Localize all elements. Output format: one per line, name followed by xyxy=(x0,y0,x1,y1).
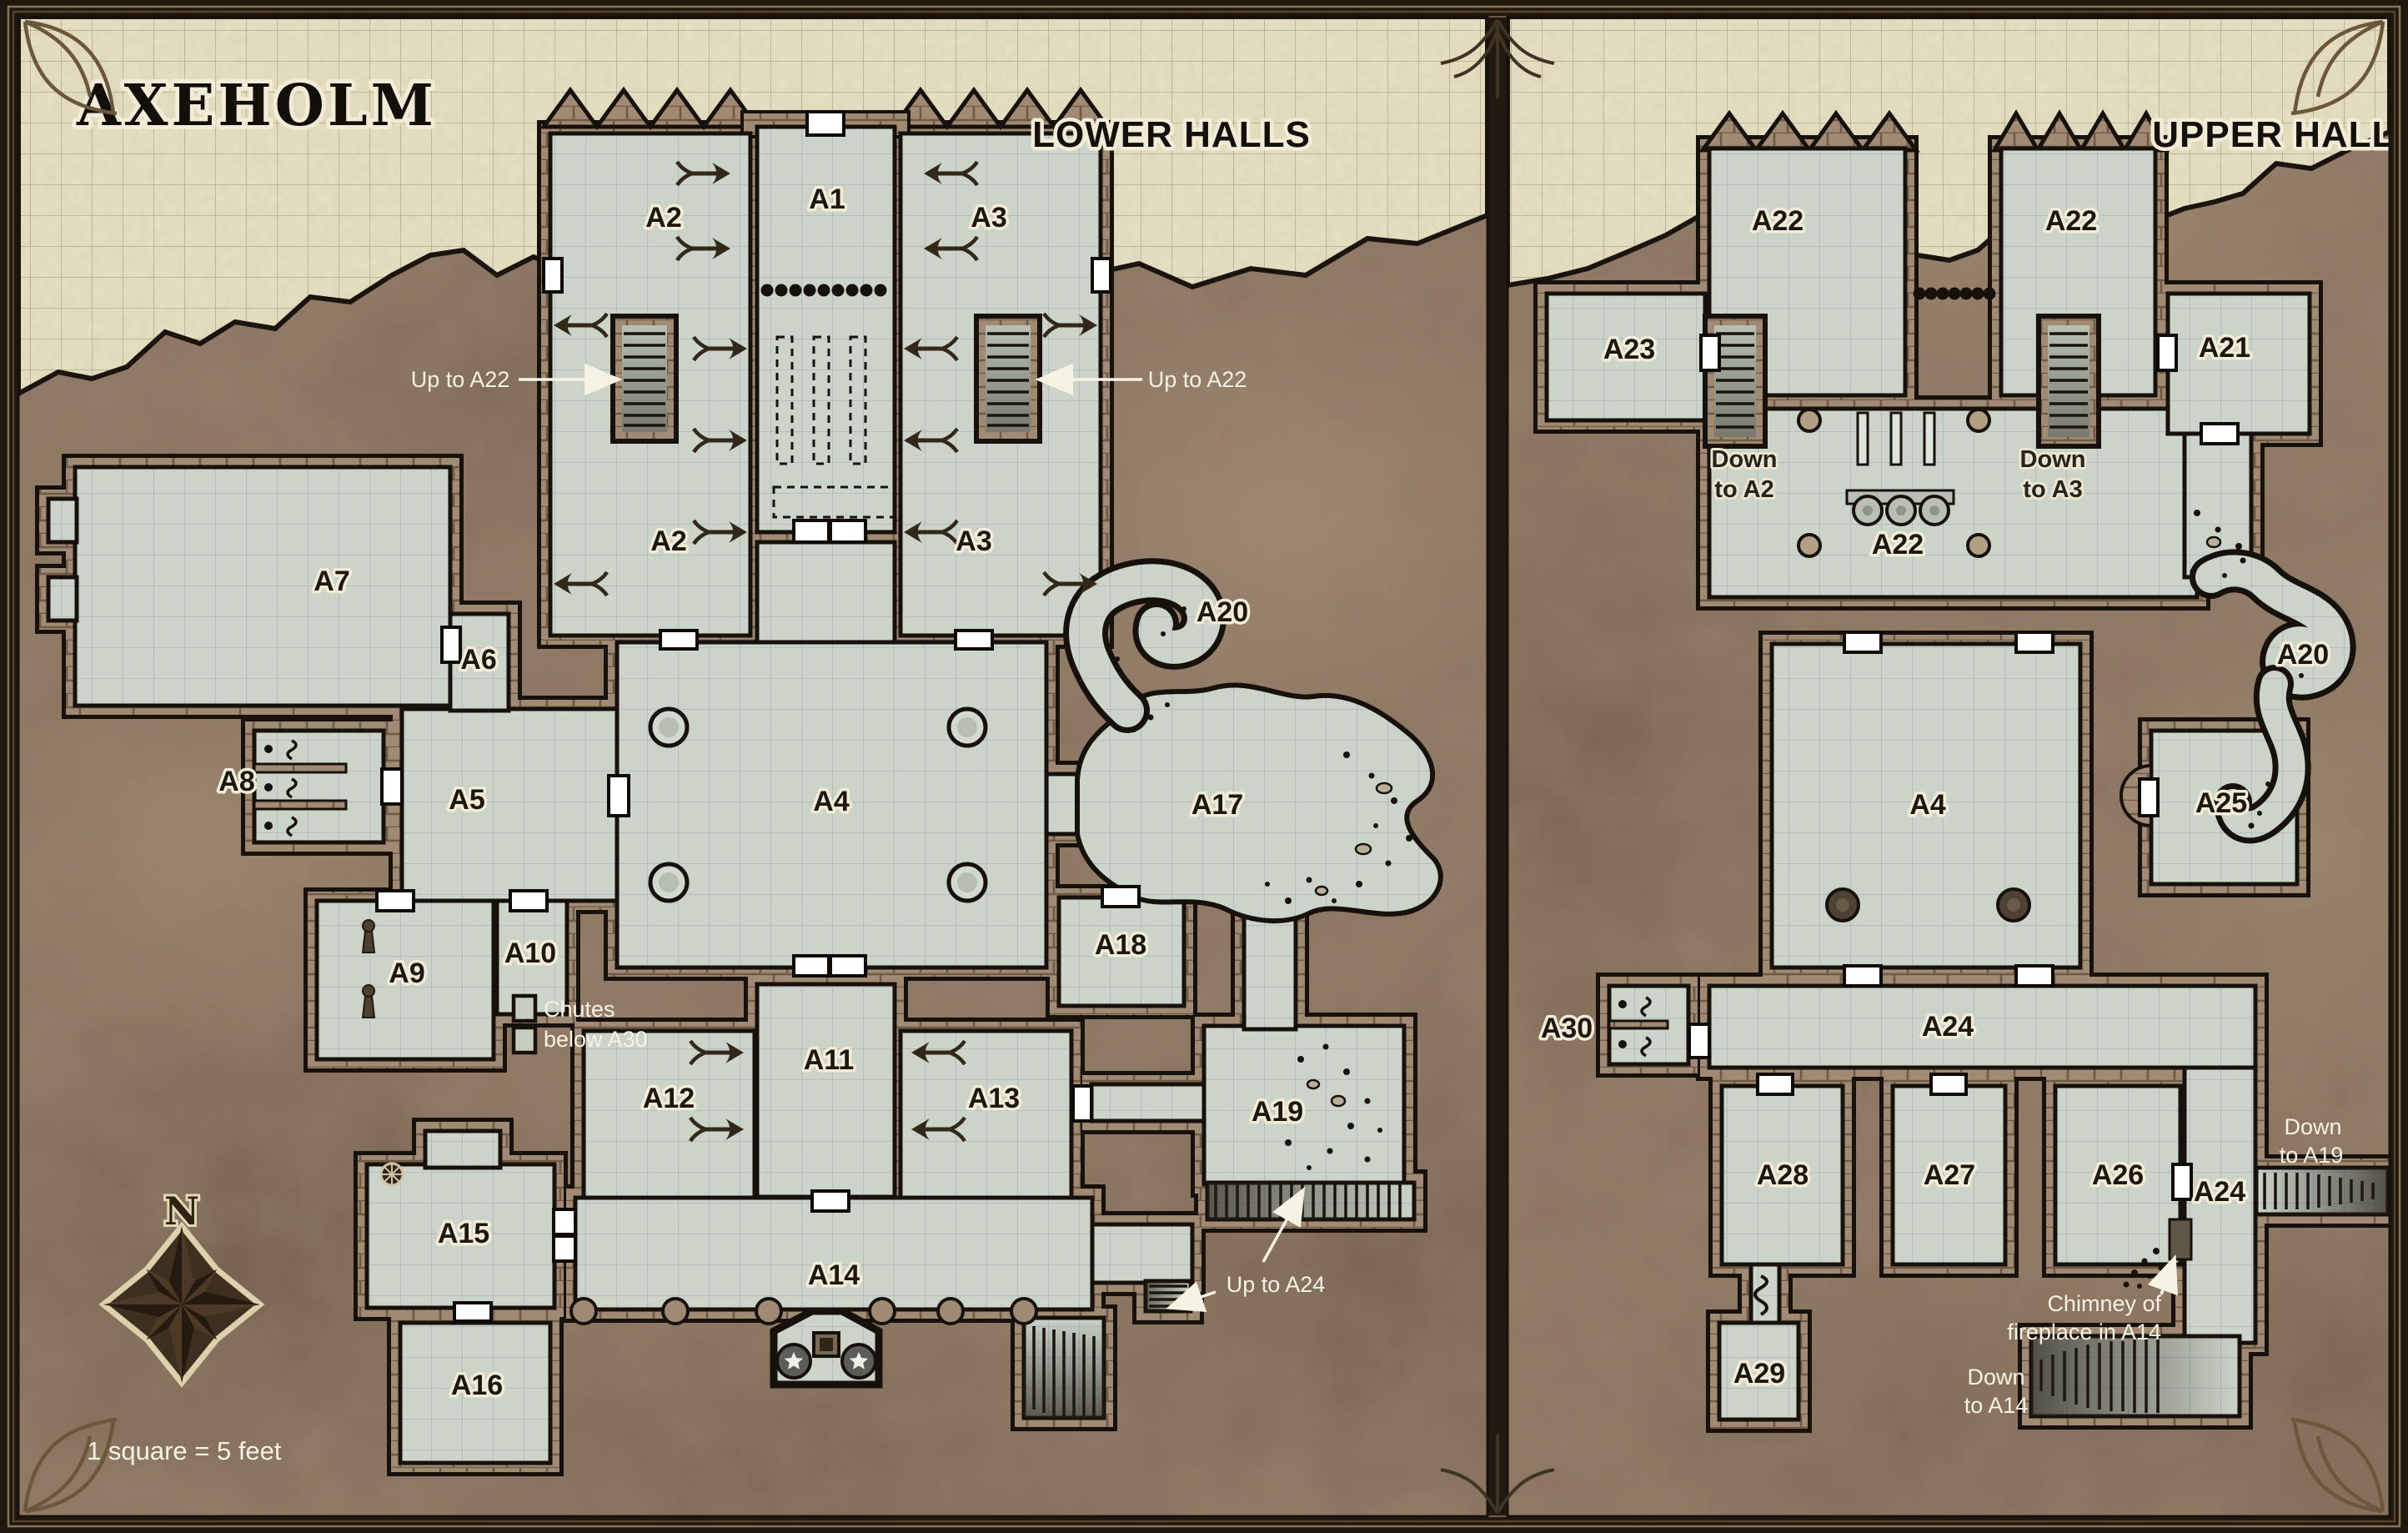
panel-divider xyxy=(1487,17,1508,1516)
room-label: A18 xyxy=(1095,929,1146,961)
room-label: A26 xyxy=(2092,1159,2144,1191)
room-label: A3 xyxy=(971,202,1006,234)
room-label: A13 xyxy=(968,1083,1020,1114)
scale-note: 1 square = 5 feet xyxy=(87,1436,282,1465)
room-floor xyxy=(1091,1084,1205,1121)
room-label: A24 xyxy=(1922,1011,1974,1043)
winch-icons xyxy=(1847,490,1954,525)
room-label: A14 xyxy=(808,1259,860,1291)
room-label: A22 xyxy=(2045,205,2097,237)
room-label: A11 xyxy=(804,1044,855,1076)
room-label: A19 xyxy=(1252,1096,1303,1128)
room-floor xyxy=(48,577,77,621)
room-floor xyxy=(575,1198,1092,1309)
fireplace-icon xyxy=(774,1311,879,1385)
room-label: A10 xyxy=(504,937,556,969)
room-label: A2 xyxy=(645,202,681,234)
chute-icon xyxy=(514,1028,535,1053)
room-floor xyxy=(757,984,895,1197)
room-floor xyxy=(1244,916,1296,1029)
room-label: A2 xyxy=(650,525,686,557)
room-label: A1 xyxy=(809,183,845,215)
annotation: Down xyxy=(2020,446,2086,473)
annotation: Up to A24 xyxy=(1227,1272,1326,1297)
room-floor xyxy=(48,499,77,542)
annotation: to A19 xyxy=(2280,1143,2344,1168)
room-label: A4 xyxy=(1909,789,1946,821)
room-label: A6 xyxy=(460,644,496,676)
annotation: Down xyxy=(2284,1114,2341,1139)
room-floor xyxy=(1204,1026,1404,1184)
room-label: A21 xyxy=(2199,332,2250,364)
room-floor xyxy=(757,542,895,642)
annotation: Up to A22 xyxy=(411,367,510,392)
annotation: to A2 xyxy=(1714,476,1773,503)
stairs-icon xyxy=(610,314,679,444)
annotation: Up to A22 xyxy=(1148,367,1247,392)
annotation: Chutes xyxy=(544,997,615,1022)
map-title: AXEHOLM xyxy=(76,73,437,139)
annotation: below A30 xyxy=(544,1027,648,1052)
panel-lower-halls: N A1 A2 A3 A2 A3 A4 A5 A6 A7 A8 A9 A10 A… xyxy=(0,17,1734,1533)
room-label: A22 xyxy=(1872,529,1924,560)
room-label: A30 xyxy=(1541,1013,1593,1044)
room-floor xyxy=(425,1131,500,1168)
room-label: A3 xyxy=(956,525,991,557)
portcullis-dots xyxy=(761,284,887,297)
room-label: A17 xyxy=(1191,789,1243,821)
room-floor xyxy=(1709,986,2255,1068)
room-label: A16 xyxy=(451,1370,503,1401)
annotation: Chimney of xyxy=(2047,1291,2161,1316)
annotation: fireplace in A14 xyxy=(2007,1319,2161,1345)
room-floor xyxy=(254,731,384,842)
room-label: A7 xyxy=(314,565,349,597)
room-floor xyxy=(1092,1224,1192,1283)
chute-icon xyxy=(514,996,535,1021)
floor-slit xyxy=(1891,413,1901,465)
room-label: A4 xyxy=(813,786,850,817)
room-label: A25 xyxy=(2195,787,2247,819)
stairs-icon xyxy=(974,314,1042,444)
room-label: A29 xyxy=(1733,1358,1785,1390)
room-floor xyxy=(402,709,617,901)
compass-north-label: N xyxy=(164,1189,199,1234)
room-label: A27 xyxy=(1924,1159,1975,1191)
panel-header-upper: UPPER HALLS xyxy=(2152,114,2408,155)
map-canvas: N A1 A2 A3 A2 A3 A4 A5 A6 A7 A8 A9 A10 A… xyxy=(0,0,2408,1533)
room-floor xyxy=(75,467,450,706)
stairs-icon xyxy=(2036,314,2101,449)
room-label: A20 xyxy=(2277,639,2329,671)
floor-slit xyxy=(1858,413,1868,465)
panel-header-lower: LOWER HALLS xyxy=(1032,114,1311,155)
room-label: A5 xyxy=(449,784,484,816)
room-label: A12 xyxy=(643,1083,695,1114)
room-floor xyxy=(2168,294,2310,434)
room-label: A8 xyxy=(218,766,254,797)
annotation: to A3 xyxy=(2023,476,2082,503)
room-label: A23 xyxy=(1603,334,1655,365)
annotation: Down xyxy=(1712,446,1778,473)
room-floor xyxy=(584,1031,755,1198)
annotation: to A14 xyxy=(1964,1393,2029,1418)
room-label: A24 xyxy=(2194,1176,2245,1208)
room-label: A22 xyxy=(1752,205,1803,237)
room-label: A9 xyxy=(389,957,424,989)
room-label: A28 xyxy=(1757,1159,1809,1191)
floor-slit xyxy=(1924,413,1934,465)
room-label: A20 xyxy=(1196,596,1248,628)
room-floor xyxy=(900,1031,1071,1198)
annotation: Down xyxy=(1967,1365,2024,1390)
dungeon-map: N A1 A2 A3 A2 A3 A4 A5 A6 A7 A8 A9 A10 A… xyxy=(0,0,2408,1533)
wheel-icon xyxy=(381,1164,403,1185)
room-label: A15 xyxy=(438,1218,489,1249)
